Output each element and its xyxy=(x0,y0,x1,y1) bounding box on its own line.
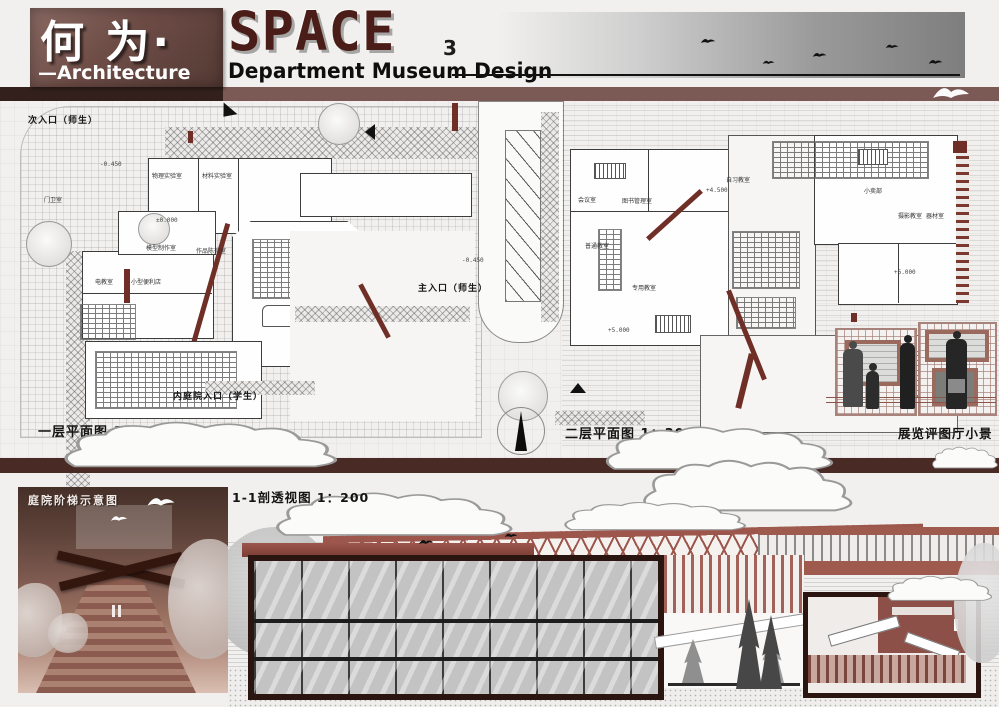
plan2-desks xyxy=(772,141,929,179)
white-bird-icon xyxy=(930,82,972,102)
courtyard-stair-view: 庭院阶梯示意图 xyxy=(18,487,228,693)
title-chinese: 何 为· xyxy=(40,6,172,70)
maroon-accent xyxy=(124,269,130,303)
courtyard-tree xyxy=(682,639,704,683)
maroon-accent xyxy=(953,141,967,153)
plan1-east-wing xyxy=(300,173,472,217)
plan1-plaza-hatch xyxy=(295,306,470,322)
room-label: 图书管理室 xyxy=(622,196,652,205)
room-label: 门卫室 xyxy=(44,195,62,204)
room-label: 小卖部 xyxy=(864,186,882,195)
bird-icon xyxy=(504,531,518,539)
parking-strip xyxy=(478,101,564,343)
tree-blob xyxy=(48,613,88,653)
tiny-figure xyxy=(112,605,115,617)
entrance-arrow-icon xyxy=(365,124,375,140)
room-label: 模型制作室 xyxy=(146,243,176,252)
bridge-ramp xyxy=(654,613,806,649)
north-needle-icon xyxy=(515,411,527,451)
bird-icon xyxy=(885,42,899,50)
stair-view-caption: 庭院阶梯示意图 xyxy=(28,492,119,508)
plan2-wall xyxy=(570,211,728,212)
vignette-pin xyxy=(851,313,857,322)
title-space: SPACE xyxy=(228,0,396,63)
room-label: 物理实验室 xyxy=(152,171,182,180)
tiny-figure xyxy=(118,605,121,617)
tree-icon xyxy=(26,221,72,267)
room-label: 专用教室 xyxy=(632,283,656,292)
bird-icon xyxy=(762,58,775,66)
north-arrow xyxy=(497,407,545,455)
stairs-symbol xyxy=(594,163,626,179)
level-label: -0.450 xyxy=(462,257,484,264)
bird-icon xyxy=(928,57,943,66)
room-label: 普通教室 xyxy=(585,241,609,250)
plan1-lecture-seats xyxy=(80,304,136,340)
title-edition: 3 xyxy=(443,36,457,60)
cloud-icon xyxy=(930,446,999,472)
level-label: ±0.000 xyxy=(156,217,178,224)
stairs-symbol xyxy=(655,315,691,333)
bird-icon xyxy=(812,50,827,59)
level-label: +4.500 xyxy=(706,187,728,194)
entrance-courtyard-label: 内庭院入口（学生） xyxy=(173,389,263,402)
floor-slab xyxy=(254,619,658,623)
window-slot xyxy=(892,607,952,615)
stairs-symbol xyxy=(858,149,888,165)
entrance-secondary-label: 次入口（师生） xyxy=(28,113,98,126)
subtitle-architecture: —Architecture xyxy=(38,62,190,84)
room-label: 小型便利店 xyxy=(131,277,161,286)
cloud-icon xyxy=(558,501,758,535)
title-box: 何 为· —Architecture xyxy=(30,8,223,87)
white-bird-icon xyxy=(110,513,128,523)
room-label: 会议室 xyxy=(578,195,596,204)
section-view: 1-1剖透视图 1：200 xyxy=(228,487,999,707)
room-label: 自习教室 xyxy=(726,175,750,184)
cloud-icon xyxy=(55,420,355,475)
floor-slab xyxy=(254,657,658,661)
room-label: 电教室 xyxy=(95,277,113,286)
level-label: -0.450 xyxy=(100,161,122,168)
person-silhouette xyxy=(900,343,915,409)
header-rule-line xyxy=(452,74,960,76)
maroon-accent xyxy=(188,131,193,143)
parking-stalls xyxy=(505,130,541,302)
person-shorts xyxy=(948,379,965,393)
bird-icon xyxy=(418,537,434,546)
room-label: 作品陈列室 xyxy=(196,246,226,255)
maroon-accent xyxy=(452,103,458,131)
subtitle-department: Department Museum Design xyxy=(228,59,552,83)
person-silhouette xyxy=(843,349,863,407)
cloud-icon xyxy=(884,575,999,605)
louver-screen xyxy=(664,555,804,613)
plan-strip: 次入口（师生） 主入口（师生） 内庭院入口（学生） 物理实验室 材料实验室 门卫… xyxy=(0,101,999,458)
plan2-desks xyxy=(732,231,800,289)
header-brown-band-dark xyxy=(0,87,223,101)
presentation-board: 何 为· —Architecture SPACE 3 Department Mu… xyxy=(0,0,999,707)
stair-backdrop xyxy=(76,505,172,549)
person-silhouette xyxy=(946,339,967,409)
tree-icon xyxy=(318,103,360,145)
plan1-wall xyxy=(238,158,239,232)
person-silhouette xyxy=(866,371,879,409)
room-label: 摄影教室 xyxy=(898,211,922,220)
room-label: 器材室 xyxy=(926,211,944,220)
section-caption: 1-1剖透视图 1：200 xyxy=(232,487,369,506)
room-label: 材料实验室 xyxy=(202,171,232,180)
vignette-caption: 展览评图厅小景 xyxy=(898,423,993,442)
maroon-louver-edge xyxy=(956,153,969,303)
parking-hatch xyxy=(541,112,559,322)
bird-icon xyxy=(700,36,716,45)
level-label: +6.000 xyxy=(894,269,916,276)
entrance-main-label: 主入口（师生） xyxy=(418,281,488,294)
louver-fence xyxy=(808,655,966,683)
plan2-desks xyxy=(598,229,622,291)
left-section-block xyxy=(248,555,664,700)
level-label: +5.000 xyxy=(608,327,630,334)
courtyard-gap xyxy=(664,555,804,688)
white-bird-icon xyxy=(146,493,176,509)
plan1-wall xyxy=(82,293,212,294)
